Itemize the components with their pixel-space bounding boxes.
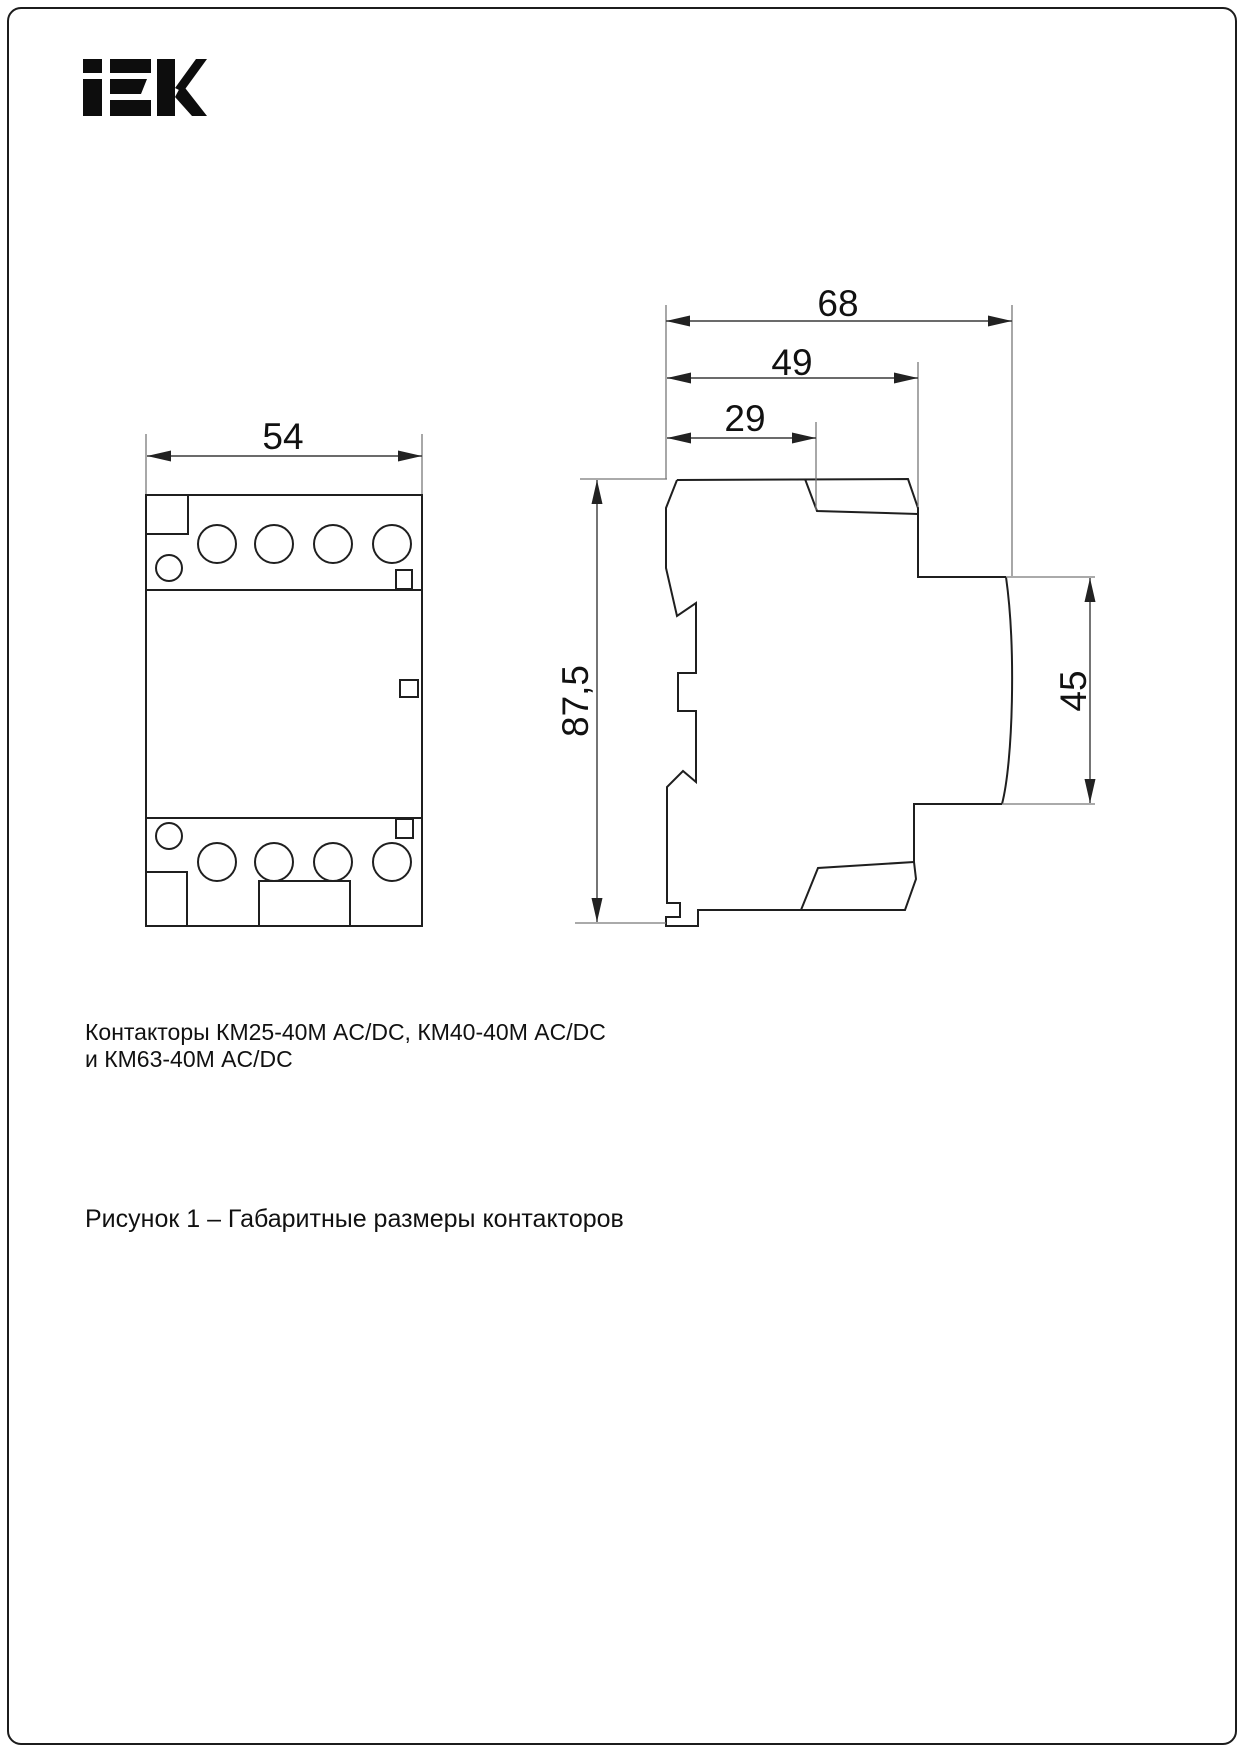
dim-87-arrow-top bbox=[592, 480, 603, 504]
products-caption: Контакторы КМ25-40М AC/DC, КМ40-40М AC/D… bbox=[85, 1019, 606, 1073]
dim-29-label: 29 bbox=[724, 398, 765, 439]
dim-68-arrow-right bbox=[988, 316, 1012, 327]
side-view-drawing bbox=[666, 479, 1012, 926]
products-caption-line2: и КМ63-40М AC/DC bbox=[85, 1046, 606, 1073]
logo-e-bottom-bar bbox=[110, 100, 151, 116]
side-top-profile bbox=[677, 479, 1006, 577]
dimension-45: 45 bbox=[1002, 577, 1096, 804]
front-bottom-center-block bbox=[259, 881, 350, 926]
front-top-small-terminal bbox=[156, 555, 182, 581]
dimension-54: 54 bbox=[146, 416, 422, 494]
document-page: 54 68 49 29 bbox=[0, 0, 1244, 1752]
dim-49-arrow-right bbox=[894, 373, 918, 384]
front-top-terminal-2 bbox=[255, 525, 293, 563]
dim-87-label: 87,5 bbox=[555, 665, 596, 737]
dim-49-arrow-left bbox=[667, 373, 691, 384]
front-bottom-terminal-4 bbox=[373, 843, 411, 881]
products-caption-line1: Контакторы КМ25-40М AC/DC, КМ40-40М AC/D… bbox=[85, 1019, 606, 1046]
front-top-terminal-3 bbox=[314, 525, 352, 563]
dimension-49: 49 bbox=[667, 342, 918, 507]
dimension-29: 29 bbox=[667, 398, 816, 510]
front-top-terminal-1 bbox=[198, 525, 236, 563]
figure-caption: Рисунок 1 – Габаритные размеры контактор… bbox=[85, 1205, 624, 1234]
dim-54-arrow-right bbox=[398, 451, 422, 462]
dim-54-label: 54 bbox=[262, 416, 303, 457]
dimension-68: 68 bbox=[666, 283, 1012, 576]
dim-54-arrow-left bbox=[147, 451, 171, 462]
dimension-87-5: 87,5 bbox=[555, 479, 667, 923]
side-rail-clip bbox=[801, 862, 914, 910]
logo-i-dot bbox=[83, 59, 102, 73]
dim-49-label: 49 bbox=[771, 342, 812, 383]
iek-logo bbox=[83, 59, 207, 116]
logo-k-lower-arm bbox=[175, 84, 207, 116]
dim-45-arrow-top bbox=[1085, 578, 1096, 602]
dim-68-label: 68 bbox=[817, 283, 858, 324]
dim-29-arrow-right bbox=[792, 433, 816, 444]
technical-drawing-canvas: 54 68 49 29 bbox=[0, 0, 1244, 1752]
dim-87-arrow-bottom bbox=[592, 898, 603, 922]
dim-45-label: 45 bbox=[1053, 670, 1094, 711]
front-bottom-terminal-1 bbox=[198, 843, 236, 881]
front-bottom-left-notch bbox=[146, 872, 187, 926]
dim-68-arrow-left bbox=[666, 316, 690, 327]
front-top-terminal-4 bbox=[373, 525, 411, 563]
side-right-arc bbox=[1002, 577, 1012, 804]
front-bottom-terminal-3 bbox=[314, 843, 352, 881]
logo-e-mid-bar bbox=[110, 79, 147, 94]
front-top-left-notch bbox=[146, 495, 188, 534]
side-top-notch bbox=[805, 479, 918, 514]
dim-29-arrow-left bbox=[667, 433, 691, 444]
front-top-right-slot bbox=[396, 570, 412, 589]
logo-i-stem bbox=[83, 79, 102, 116]
logo-e-top-bar bbox=[110, 59, 151, 73]
front-bottom-small-terminal bbox=[156, 823, 182, 849]
front-view-drawing bbox=[146, 495, 422, 926]
logo-k-stem bbox=[157, 59, 175, 116]
side-left-profile bbox=[666, 480, 1002, 926]
dim-45-arrow-bottom bbox=[1085, 779, 1096, 803]
front-bottom-terminal-2 bbox=[255, 843, 293, 881]
logo-k-upper-arm bbox=[175, 59, 207, 92]
front-bottom-right-slot bbox=[396, 819, 413, 838]
front-middle-right-slot bbox=[400, 680, 418, 697]
